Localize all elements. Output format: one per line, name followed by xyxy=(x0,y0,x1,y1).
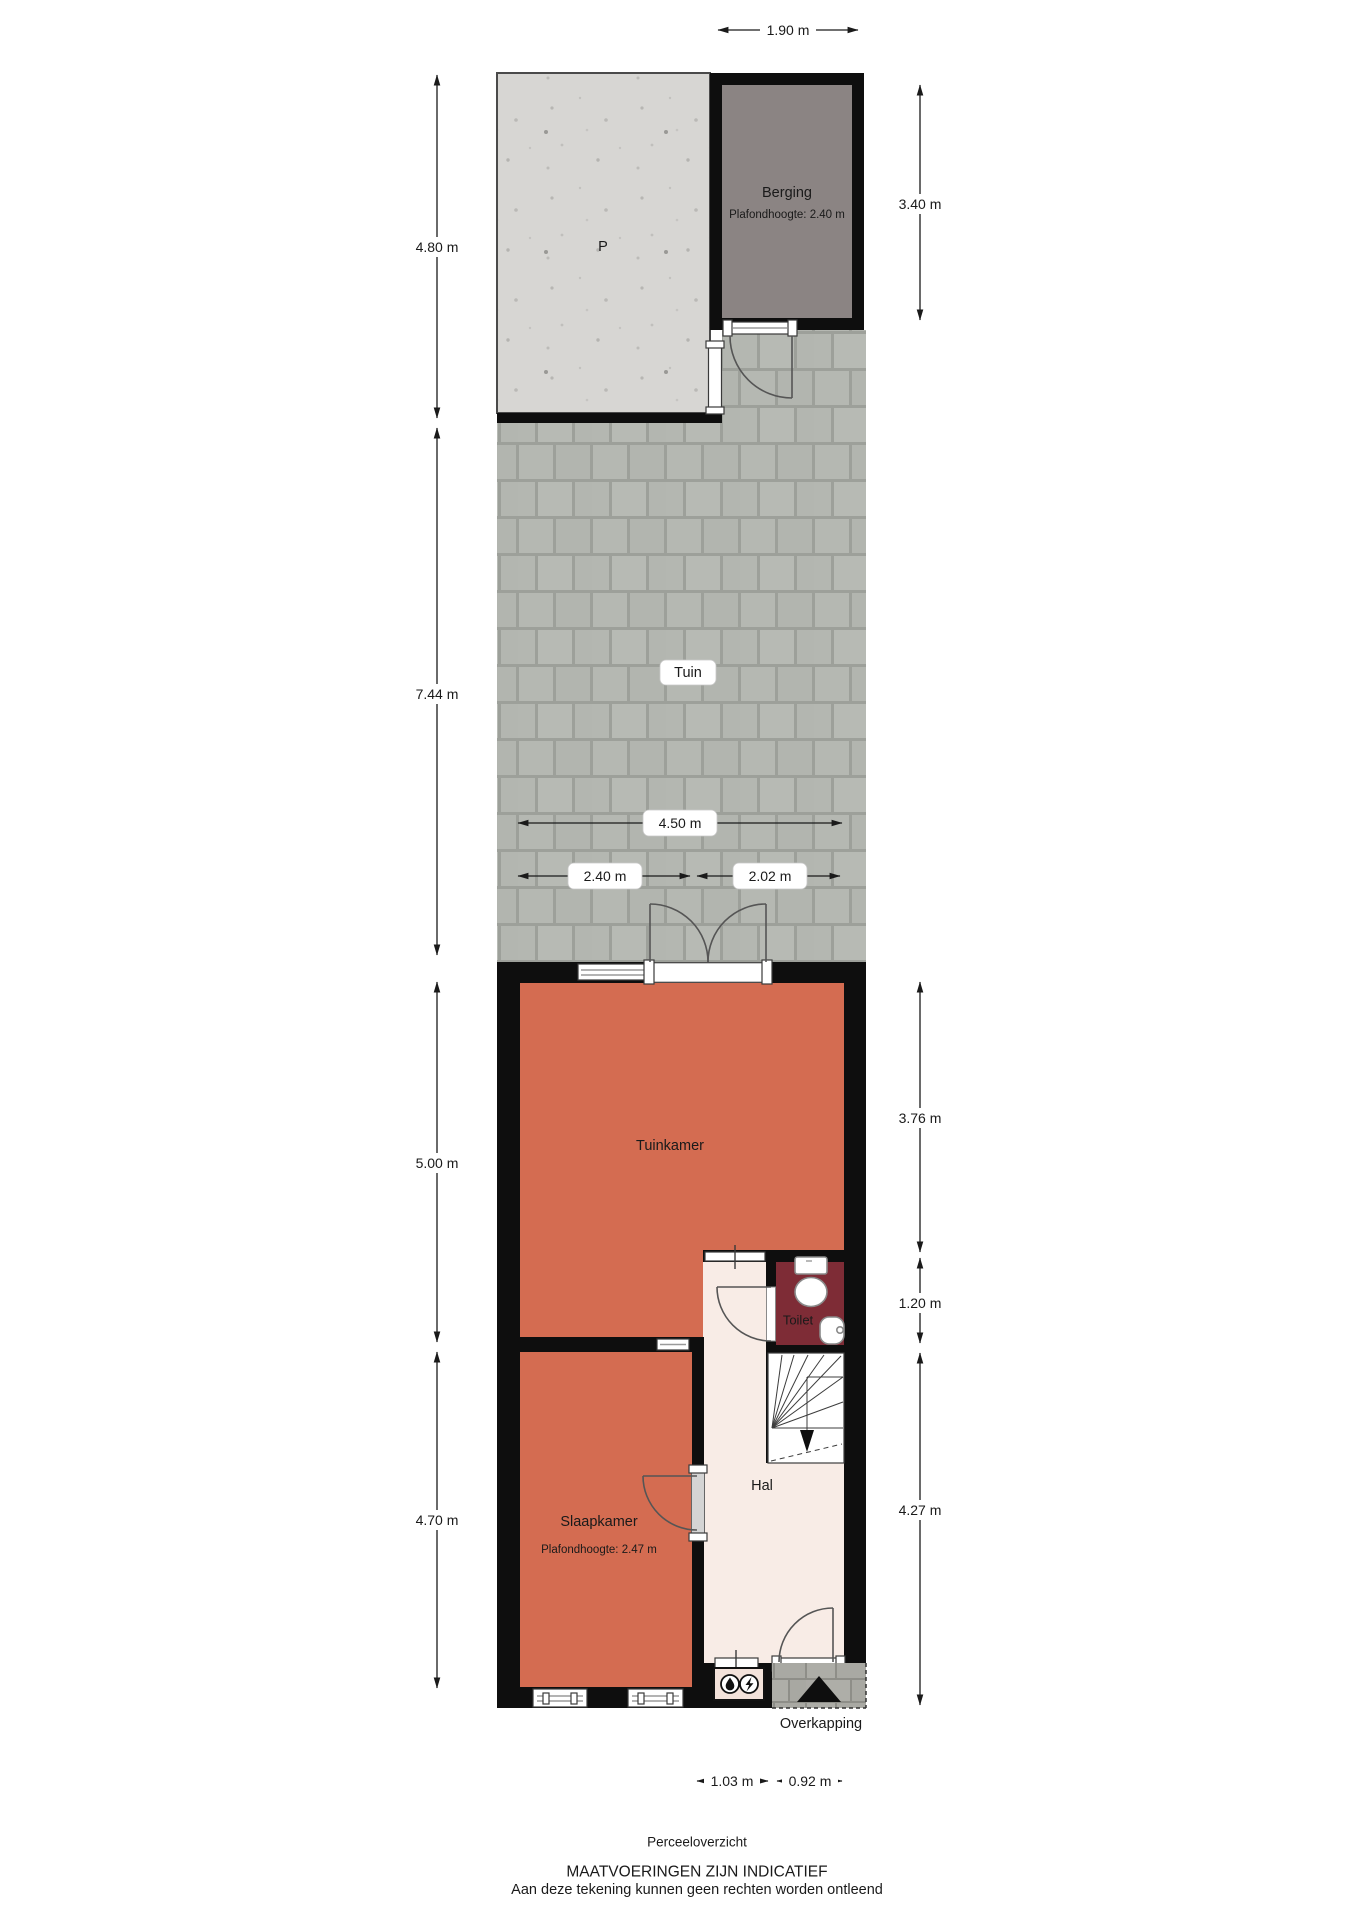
slab-dot xyxy=(664,370,668,374)
svg-text:3.76 m: 3.76 m xyxy=(899,1110,942,1126)
slab-dot xyxy=(664,130,668,134)
slab-dot xyxy=(544,130,548,134)
meterkast xyxy=(714,1650,764,1700)
svg-text:4.70 m: 4.70 m xyxy=(416,1512,459,1528)
svg-text:Tuin: Tuin xyxy=(674,665,702,681)
svg-text:4.50 m: 4.50 m xyxy=(659,815,702,831)
footer: Perceeloverzicht MAATVOERINGEN ZIJN INDI… xyxy=(511,1835,883,1899)
svg-text:0.92 m: 0.92 m xyxy=(789,1773,832,1789)
svg-text:4.80 m: 4.80 m xyxy=(416,239,459,255)
dimension-right-4: 4.27 m xyxy=(892,1353,948,1705)
sink-icon xyxy=(820,1317,844,1344)
overkapping-label: Overkapping xyxy=(780,1716,862,1732)
svg-text:1.03 m: 1.03 m xyxy=(711,1773,754,1789)
svg-text:1.20 m: 1.20 m xyxy=(899,1295,942,1311)
stairs xyxy=(768,1353,844,1463)
slaapkamer-label: Slaapkamer xyxy=(560,1514,638,1530)
berging-label: Berging xyxy=(762,185,812,201)
interior-window xyxy=(657,1339,689,1350)
hal-label: Hal xyxy=(751,1478,773,1494)
svg-text:5.00 m: 5.00 m xyxy=(416,1155,459,1171)
tuin-label: Tuin xyxy=(660,660,716,685)
dimension-left-1: 4.80 m xyxy=(409,75,465,418)
garden-window xyxy=(578,964,648,980)
slaapkamer-window-right xyxy=(628,1689,683,1707)
toilet-label: Toilet xyxy=(783,1313,814,1328)
slab-dot xyxy=(664,250,668,254)
floorplan-drawing: P Berging Plafondhoogte: 2.40 m Tuin xyxy=(0,0,1358,1920)
wall-toilet-stairs xyxy=(766,1345,844,1353)
dimension-right-3: 1.20 m xyxy=(892,1258,948,1343)
berging-ceiling-label: Plafondhoogte: 2.40 m xyxy=(729,209,845,221)
svg-text:2.02 m: 2.02 m xyxy=(749,868,792,884)
overkapping-area: Overkapping xyxy=(772,1663,866,1732)
parking-boundary-wall xyxy=(497,413,722,423)
slab-dot xyxy=(544,370,548,374)
disclaimer-line2: Aan deze tekening kunnen geen rechten wo… xyxy=(511,1882,883,1898)
svg-text:3.40 m: 3.40 m xyxy=(899,196,942,212)
dimension-left-3: 5.00 m xyxy=(409,982,465,1342)
dimension-right-1: 3.40 m xyxy=(892,85,948,320)
garden-gate xyxy=(706,341,724,414)
dimension-bottom-right: 0.92 m xyxy=(777,1771,842,1791)
parking-area: P xyxy=(497,73,722,423)
dimension-left-2: 7.44 m xyxy=(409,428,465,955)
svg-text:1.90 m: 1.90 m xyxy=(767,22,810,38)
disclaimer-line1: MAATVOERINGEN ZIJN INDICATIEF xyxy=(566,1864,827,1881)
slaapkamer-window-left xyxy=(533,1689,587,1707)
tuin-side-path xyxy=(722,330,866,423)
slaapkamer-ceiling-label: Plafondhoogte: 2.47 m xyxy=(541,1544,657,1556)
svg-text:2.40 m: 2.40 m xyxy=(584,868,627,884)
house: Tuinkamer Toilet Hal Slaapkamer Plafondh… xyxy=(497,904,866,1708)
plan-title: Perceeloverzicht xyxy=(647,1835,747,1850)
tuinkamer-label: Tuinkamer xyxy=(636,1138,704,1154)
dimension-top-width: 1.90 m xyxy=(718,20,858,40)
slab-dot xyxy=(544,250,548,254)
parking-label: P xyxy=(598,239,608,255)
floorplan-page: P Berging Plafondhoogte: 2.40 m Tuin xyxy=(0,0,1358,1920)
toilet-fixture-icon xyxy=(795,1257,827,1307)
svg-text:4.27 m: 4.27 m xyxy=(899,1502,942,1518)
dimension-right-2: 3.76 m xyxy=(892,982,948,1252)
berging-floor xyxy=(722,85,852,318)
svg-text:7.44 m: 7.44 m xyxy=(416,686,459,702)
dimension-bottom-left: 1.03 m xyxy=(697,1771,768,1791)
dimension-left-4: 4.70 m xyxy=(409,1352,465,1688)
tuin-paving xyxy=(497,423,866,962)
garden-area xyxy=(497,330,866,962)
